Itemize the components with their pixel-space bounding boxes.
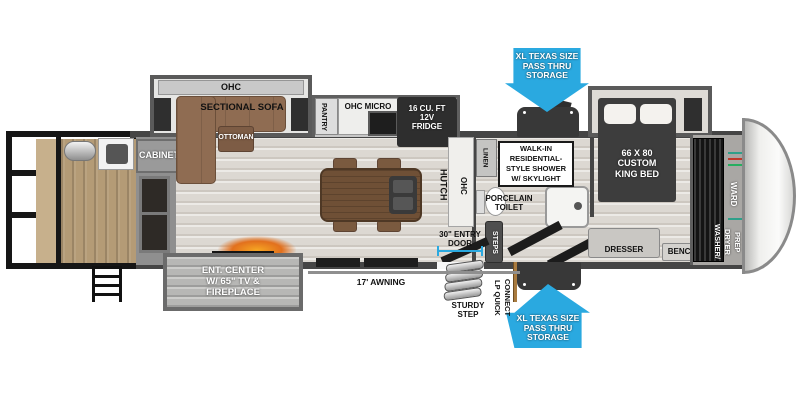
sturdy-step-icon [441,259,490,305]
pillow [604,104,636,124]
microwave [368,111,398,136]
lp-quick-connect-pipe [513,262,517,302]
ent-center-label: ENT. CENTER W/ 65" TV & FIREPLACE [167,266,299,299]
fridge-label: 16 CU. FT 12V FRIDGE [397,104,457,132]
steps-label: STEPS [490,224,498,261]
clothes-icon [728,152,742,154]
ohc-micro-label: OHC MICRO [336,102,400,111]
awning-label: 17' AWNING [348,278,414,288]
king-bed-label: 66 X 80 CUSTOM KING BED [598,148,676,179]
entry-door-label: 30" ENTRY DOOR [430,230,490,248]
hutch-label: HUTCH [438,160,448,210]
window [316,258,360,267]
island-sink-basin [393,180,413,193]
pass-thru-bottom-label: XL TEXAS SIZE PASS THRU STORAGE [508,314,588,343]
clothes-icon [728,158,742,160]
garage-glass-door-divider [141,212,168,215]
bath-bedroom-wall [590,137,594,217]
shower-label: WALK-IN RESIDENTIAL- STYLE SHOWER W/ SKY… [499,144,573,184]
slide-window-left [154,98,171,131]
pass-thru-top-label: XL TEXAS SIZE PASS THRU STORAGE [507,52,587,81]
lp-quick-connect-label: LP QUICK CONNECT [492,272,512,324]
pillow [640,104,672,124]
rv-floorplan: CABINET OHC SECTIONAL SOFA OTTOMAN ENT. … [0,0,800,400]
ward-label: WARD [729,174,738,214]
window [364,258,418,267]
island-sink-basin [393,197,413,210]
ladder-icon [92,266,122,302]
deck-wood-panel [36,139,56,263]
sectional-sofa-label: SECTIONAL SOFA [192,103,292,114]
deck-rail-bar [12,170,36,176]
entry-door-dim-line [437,250,483,252]
clothes-icon [728,164,742,166]
front-cap [742,118,796,274]
ohc-label: OHC [158,82,304,92]
garage-appliance-door [106,144,128,164]
dresser-label: DRESSER [590,245,658,254]
storage-screw [523,111,526,114]
hutch-ohc-label: OHC [459,168,468,204]
storage-screw [572,283,575,286]
shower-drain [574,202,582,210]
storage-screw [523,283,526,286]
ottoman-label: OTTOMAN [216,134,256,142]
storage-screw [570,111,573,114]
washer-dryer-label: WASHER/ DRYER PREP [712,220,742,264]
linen-label: LINEN [481,141,488,175]
pantry-label: PANTRY [319,99,327,135]
water-heater [64,141,96,161]
bedroom-window-right [684,98,702,131]
shower-pan [545,186,589,228]
slide-window-right [291,98,308,131]
deck-rail-bar [12,212,36,218]
sturdy-step-label: STURDY STEP [444,301,492,319]
awning-line [308,271,520,274]
toilet-label: PORCELAIN TOILET [478,194,540,212]
